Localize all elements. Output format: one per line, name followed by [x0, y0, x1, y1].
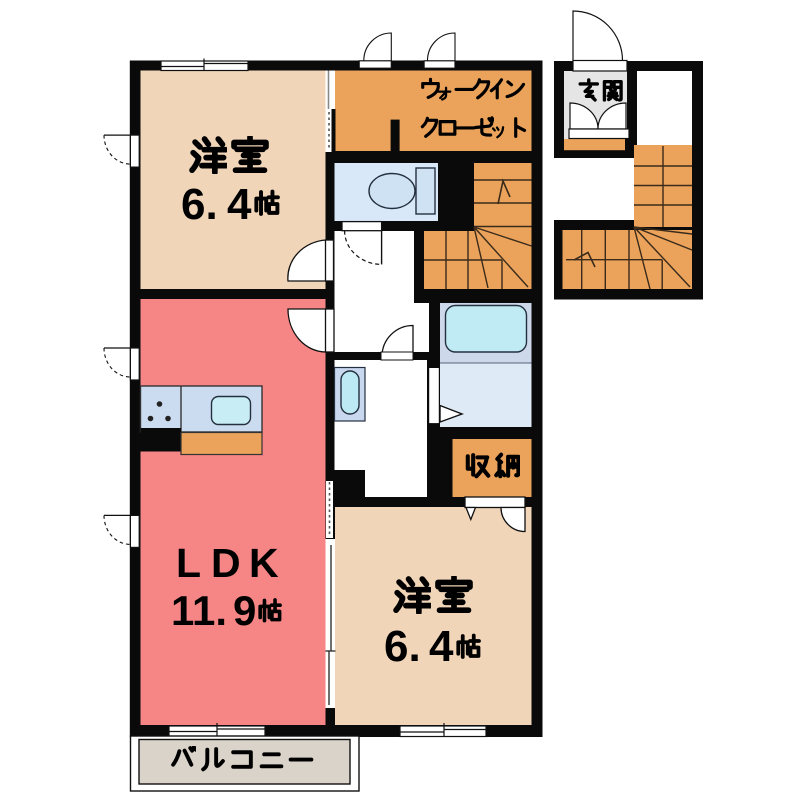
svg-text:4: 4	[429, 622, 454, 671]
svg-text:K: K	[249, 540, 279, 586]
svg-text:4: 4	[227, 180, 252, 229]
svg-text:6.: 6.	[181, 180, 218, 229]
svg-text:11.: 11.	[171, 587, 227, 634]
svg-text:6.: 6.	[384, 622, 421, 671]
svg-text:L: L	[176, 540, 201, 586]
svg-text:D: D	[211, 540, 241, 586]
svg-text:9: 9	[233, 587, 256, 634]
